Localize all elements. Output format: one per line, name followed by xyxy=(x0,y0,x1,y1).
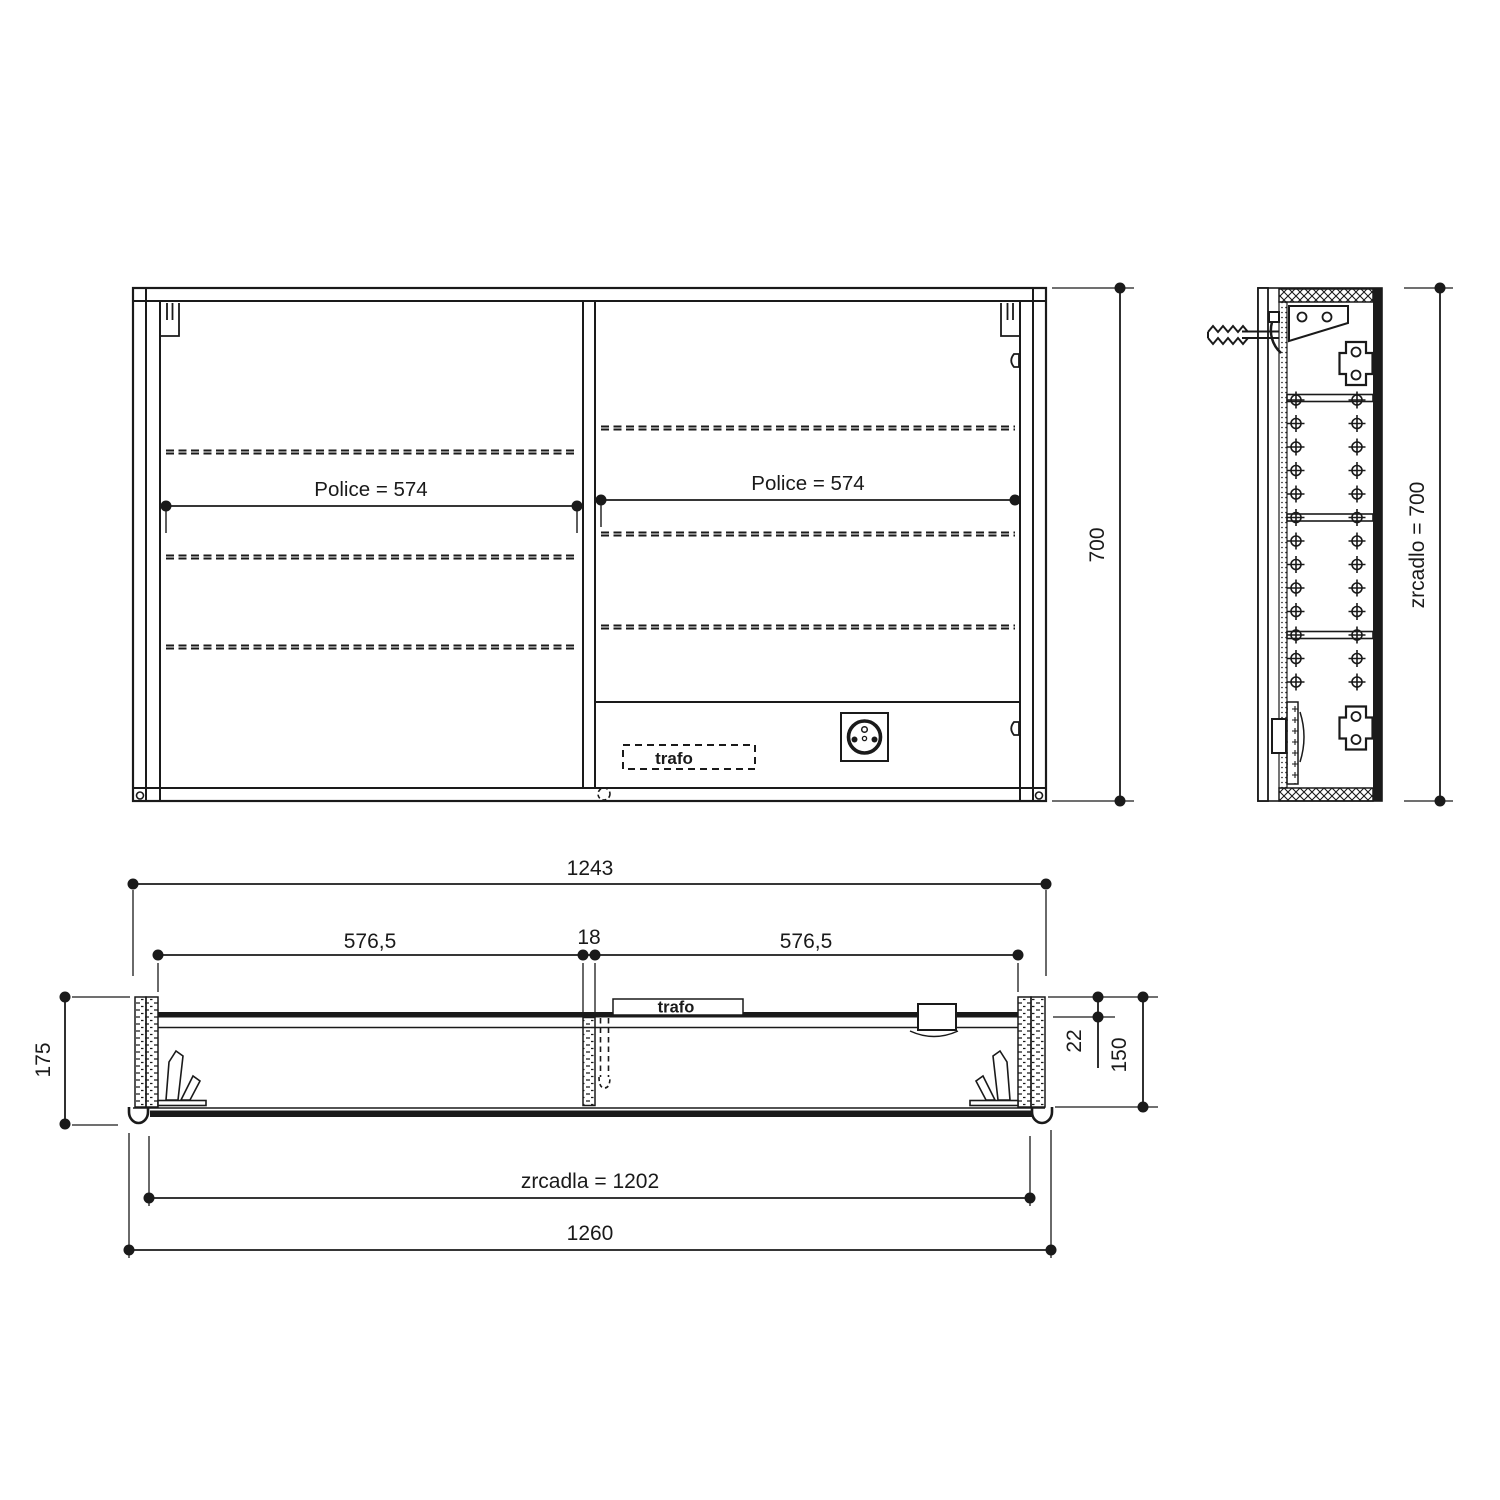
side-height-label: zrcadlo = 700 xyxy=(1406,482,1429,609)
dim-doors: 576,5 18 576,5 xyxy=(153,926,1024,961)
mounting-bracket-top xyxy=(1289,306,1348,341)
plan-right-panel xyxy=(1018,997,1031,1107)
technical-drawing-page: trafo Police = 574 Police = 574 xyxy=(0,0,1500,1500)
mirror-end-right xyxy=(1032,1107,1052,1123)
hinge-plate-bottom xyxy=(1340,707,1373,750)
dim-mirror-width: zrcadla = 1202 xyxy=(144,1170,1036,1204)
plan-left-panel xyxy=(135,997,146,1107)
trafo-label-front: trafo xyxy=(655,749,693,768)
dim-body-width: 1243 xyxy=(128,857,1052,890)
wall-anchor-screw xyxy=(1208,312,1281,353)
shelf-pin-holes xyxy=(1288,392,1366,691)
outlet-plan xyxy=(910,1004,958,1037)
plan-back-panel xyxy=(158,1012,1018,1018)
dim-width-overall: 1260 xyxy=(124,1222,1057,1256)
side-bottom-bracket xyxy=(1272,719,1286,753)
plan-hinge-left xyxy=(158,1051,206,1106)
dim-back-offset: 22 xyxy=(1063,992,1104,1069)
dim-side-height: zrcadlo = 700 xyxy=(1404,283,1453,807)
mirror-width-label: zrcadla = 1202 xyxy=(521,1170,659,1193)
outlet-symbol xyxy=(841,713,888,761)
plan-mirror xyxy=(150,1111,1032,1118)
dim-depth-overall: 175 xyxy=(32,992,71,1130)
depth-body-label: 150 xyxy=(1108,1037,1131,1072)
side-top-hatch xyxy=(1279,289,1373,302)
trafo-label-plan: trafo xyxy=(658,999,695,1017)
door-latch-bottom xyxy=(1011,722,1019,735)
front-height-label: 700 xyxy=(1086,527,1109,562)
side-back-strip xyxy=(1279,302,1287,788)
left-door-label: 576,5 xyxy=(344,930,397,953)
side-bottom-hatch xyxy=(1279,788,1373,801)
width-overall-label: 1260 xyxy=(567,1222,614,1245)
front-outer-frame xyxy=(133,288,1046,801)
plan-center-divider xyxy=(583,1018,595,1106)
plan-view: trafo xyxy=(32,857,1158,1258)
plan-hinge-right xyxy=(970,1051,1018,1106)
side-light-baffle xyxy=(1287,702,1298,784)
front-view: trafo Police = 574 Police = 574 xyxy=(133,283,1134,807)
dim-front-height: 700 xyxy=(1052,283,1134,807)
right-door-label: 576,5 xyxy=(780,930,833,953)
hinge-plate-top xyxy=(1340,342,1373,385)
body-width-label: 1243 xyxy=(567,857,614,880)
door-latch-top xyxy=(1011,354,1019,367)
depth-overall-label: 175 xyxy=(32,1042,55,1077)
side-front-trim xyxy=(1258,288,1268,801)
mirror-end-left xyxy=(129,1107,148,1123)
police-right-label: Police = 574 xyxy=(751,472,864,495)
back-offset-label: 22 xyxy=(1063,1029,1086,1052)
divider-label: 18 xyxy=(577,926,600,949)
dim-depth-body: 150 xyxy=(1108,992,1149,1113)
police-left-label: Police = 574 xyxy=(314,478,427,501)
cable-dashed xyxy=(599,1018,610,1088)
side-mirror-door xyxy=(1373,288,1382,801)
side-view: zrcadlo = 700 xyxy=(1208,283,1453,807)
cabinet-drawing-svg: trafo Police = 574 Police = 574 xyxy=(0,0,1500,1500)
